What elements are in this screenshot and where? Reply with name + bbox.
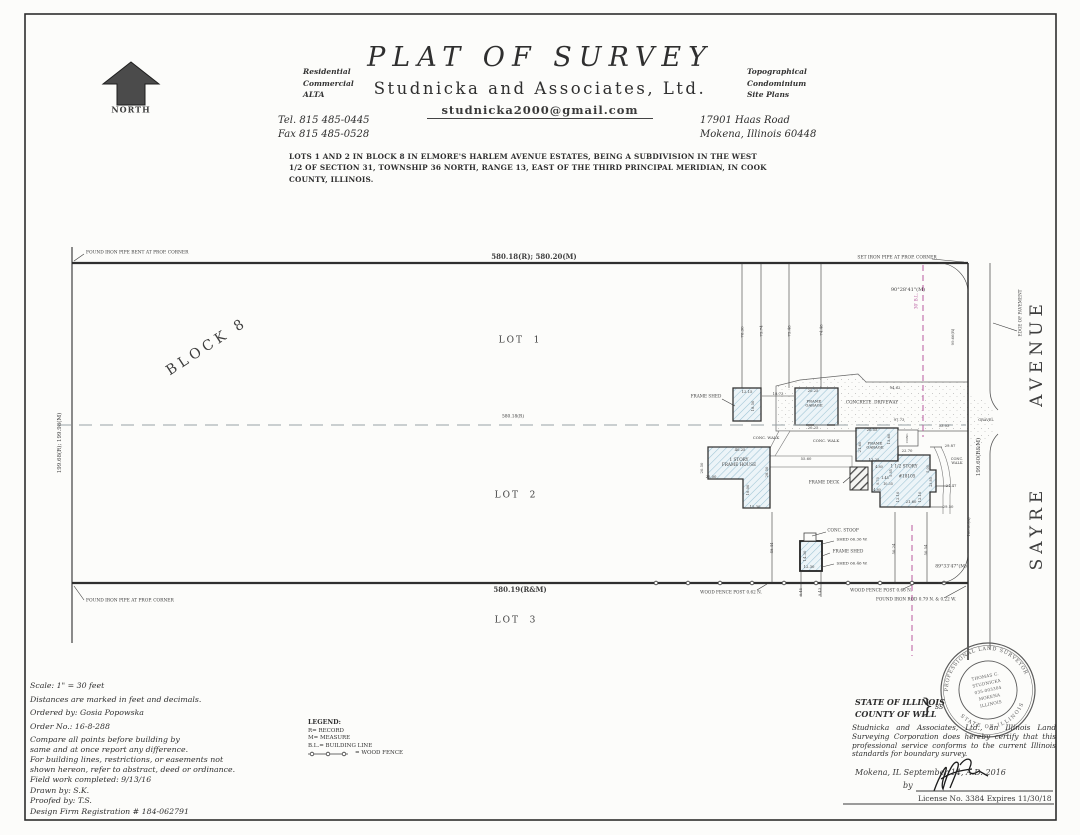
service-alta: ALTA bbox=[303, 89, 354, 101]
wood-fence-legend-icon bbox=[308, 750, 352, 758]
legend-wood-fence: = WOOD FENCE bbox=[355, 750, 403, 757]
legend-block: LEGEND: R= RECORD M= MEASURE B.L.= BUILD… bbox=[308, 719, 403, 758]
survey-notes: Scale: 1" = 30 feet Distances are marked… bbox=[30, 681, 300, 817]
frame-deck bbox=[850, 467, 868, 490]
frame-garage-1 bbox=[795, 388, 838, 425]
company-email: studnicka2000@gmail.com bbox=[427, 103, 652, 119]
frame-shed-1 bbox=[733, 388, 761, 421]
note-field-work: Field work completed: 9/13/16 bbox=[30, 775, 300, 784]
address-street: 17901 Haas Road bbox=[700, 114, 816, 128]
legend-measure: M= MEASURE bbox=[308, 735, 403, 742]
service-topographical: Topographical bbox=[747, 66, 807, 78]
legal-description: LOTS 1 AND 2 IN BLOCK 8 IN ELMORE'S HARL… bbox=[289, 151, 771, 185]
plat-page: PROFESSIONAL LAND SURVEYOR STATE OF ILLI… bbox=[0, 0, 1080, 835]
legend-title: LEGEND: bbox=[308, 719, 403, 726]
gravel-apron bbox=[969, 396, 995, 448]
company-name: Studnicka and Associates, Ltd. bbox=[0, 79, 1080, 98]
phone-block: Tel. 815 485-0445 Fax 815 485-0528 bbox=[278, 114, 370, 141]
service-residential: Residential bbox=[303, 66, 354, 78]
cert-body: Studnicka and Associates, Ltd., an Illin… bbox=[852, 724, 1056, 759]
cert-by: by bbox=[903, 781, 913, 790]
services-right: Topographical Condominium Site Plans bbox=[747, 66, 807, 101]
cert-place-date: Mokena, IL September 14, A.D. 2016 bbox=[855, 768, 1006, 777]
note-ordered-by: Ordered by: Gosia Popowska bbox=[30, 708, 300, 717]
address-block: 17901 Haas Road Mokena, Illinois 60448 bbox=[700, 114, 816, 141]
service-condominium: Condominium bbox=[747, 78, 807, 90]
fax: Fax 815 485-0528 bbox=[278, 128, 370, 142]
note-drawn-by: Drawn by: S.K. bbox=[30, 786, 300, 795]
cert-brace: } bbox=[921, 693, 934, 717]
address-city: Mokena, Illinois 60448 bbox=[700, 128, 816, 142]
conc-pad bbox=[898, 430, 918, 446]
note-compare-2: same and at once report any difference. bbox=[30, 745, 300, 754]
frame-house bbox=[708, 447, 770, 508]
legend-record: R= RECORD bbox=[308, 728, 403, 735]
telephone: Tel. 815 485-0445 bbox=[278, 114, 370, 128]
note-order-no: Order No.: 16-8-288 bbox=[30, 722, 300, 731]
cert-ss: ss bbox=[935, 702, 943, 711]
service-site-plans: Site Plans bbox=[747, 89, 807, 101]
frame-shed-2 bbox=[800, 541, 822, 571]
email-row: studnicka2000@gmail.com bbox=[0, 99, 1080, 119]
note-proofed-by: Proofed by: T.S. bbox=[30, 796, 300, 805]
note-design-firm: Design Firm Registration # 184-062791 bbox=[30, 807, 300, 816]
story-1-5-house bbox=[872, 455, 936, 507]
note-building-lines-1: For building lines, restrictions, or eas… bbox=[30, 755, 300, 764]
edge-of-pavement-line bbox=[990, 263, 998, 410]
service-commercial: Commercial bbox=[303, 78, 354, 90]
services-left: Residential Commercial ALTA bbox=[303, 66, 354, 101]
edge-of-pavement-line-lower bbox=[990, 434, 998, 650]
note-distances: Distances are marked in feet and decimal… bbox=[30, 695, 300, 704]
note-scale: Scale: 1" = 30 feet bbox=[30, 681, 300, 690]
note-building-lines-2: shown hereon, refer to abstract, deed or… bbox=[30, 765, 300, 774]
frame-garage-2 bbox=[856, 428, 898, 461]
conc-stoop bbox=[804, 533, 816, 541]
conc-walk-2 bbox=[770, 456, 852, 467]
note-compare-1: Compare all points before building by bbox=[30, 735, 300, 744]
cert-license: License No. 3384 Expires 11/30/18 bbox=[918, 794, 1052, 803]
seal-center-text: THOMAS C. STUDNICKA 035-003304 MOKENA IL… bbox=[970, 671, 1006, 709]
legend-building-line: B.L.= BUILDING LINE bbox=[308, 743, 403, 750]
page-title: PLAT OF SURVEY bbox=[0, 42, 1080, 73]
conc-walk-3-edge2 bbox=[941, 447, 951, 514]
